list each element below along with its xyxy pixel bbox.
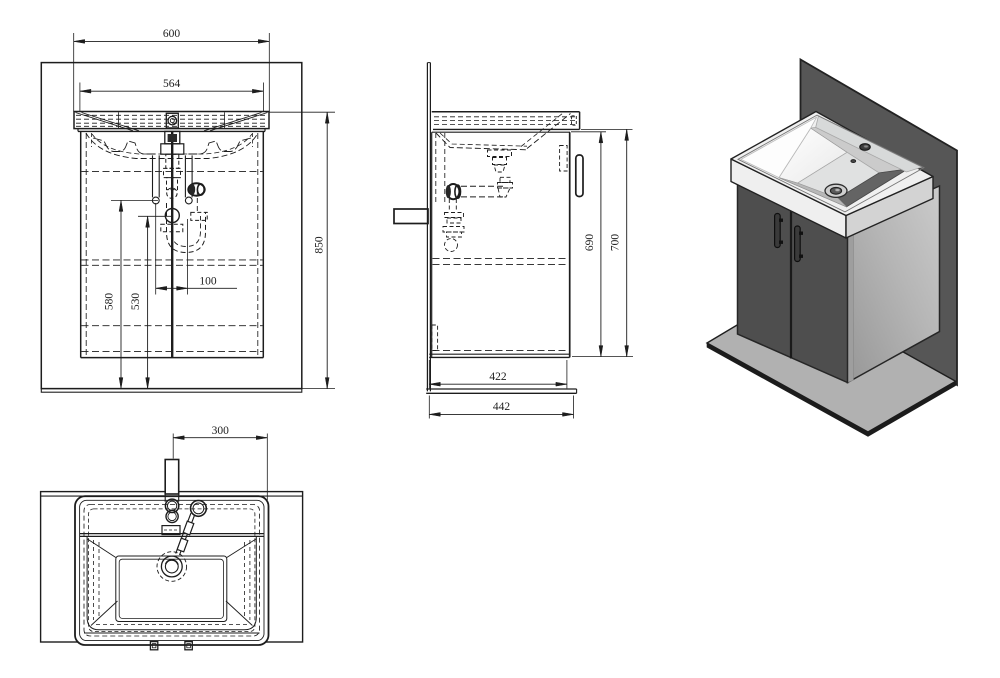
svg-text:100: 100 [199, 275, 217, 287]
svg-text:700: 700 [610, 234, 622, 252]
svg-text:600: 600 [163, 28, 181, 40]
svg-text:580: 580 [104, 293, 116, 311]
svg-text:442: 442 [493, 401, 511, 413]
svg-text:850: 850 [314, 236, 326, 254]
svg-text:690: 690 [584, 234, 596, 252]
svg-text:530: 530 [130, 293, 142, 311]
svg-text:300: 300 [212, 425, 230, 437]
svg-text:564: 564 [163, 78, 181, 90]
svg-text:422: 422 [489, 371, 507, 383]
